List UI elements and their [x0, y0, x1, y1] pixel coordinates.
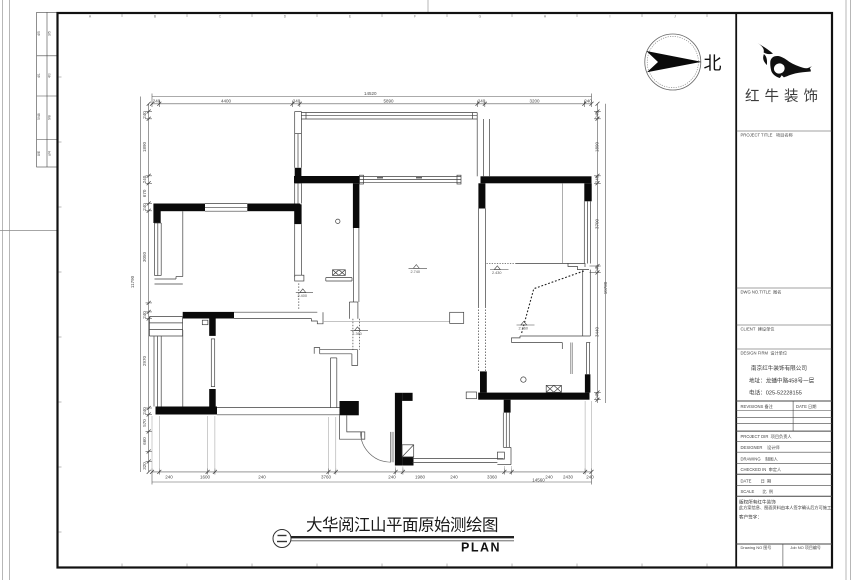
svg-text:570: 570 — [142, 419, 147, 427]
svg-text:PROJECT DIR 项目负责人: PROJECT DIR 项目负责人 — [741, 433, 793, 440]
svg-text:240: 240 — [586, 475, 594, 480]
svg-text:3440: 3440 — [595, 326, 600, 337]
svg-text:5890: 5890 — [383, 99, 394, 104]
svg-text:240: 240 — [584, 99, 592, 104]
svg-text:客户签字：: 客户签字： — [739, 514, 762, 521]
svg-text:4/5: 4/5 — [37, 31, 41, 36]
svg-text:CHECKED IN 审定人: CHECKED IN 审定人 — [741, 466, 783, 473]
svg-text:240: 240 — [142, 311, 147, 319]
svg-text:地址：龙蟠中路458号一层: 地址：龙蟠中路458号一层 — [749, 376, 815, 384]
svg-text:240: 240 — [142, 175, 147, 183]
svg-text:240: 240 — [595, 175, 600, 183]
svg-text:2.360: 2.360 — [352, 332, 362, 336]
svg-text:1980: 1980 — [415, 475, 426, 480]
svg-text:4/0: 4/0 — [48, 73, 52, 78]
svg-text:DRAWING 制图人: DRAWING 制图人 — [741, 455, 779, 462]
svg-text:I: I — [610, 15, 611, 19]
svg-text:240: 240 — [545, 475, 553, 480]
svg-text:2970: 2970 — [142, 355, 147, 366]
svg-text:Drawing NO 图号: Drawing NO 图号 — [741, 544, 772, 550]
svg-text:240: 240 — [595, 265, 600, 273]
svg-text:9/8: 9/8 — [48, 115, 52, 120]
svg-text:14560: 14560 — [532, 478, 545, 483]
svg-text:REVISIONS 备注: REVISIONS 备注 — [741, 403, 774, 410]
svg-text:240: 240 — [293, 99, 301, 104]
svg-text:240: 240 — [595, 111, 600, 119]
svg-text:4400: 4400 — [221, 99, 232, 104]
svg-text:1890: 1890 — [595, 141, 600, 152]
svg-text:240: 240 — [153, 99, 161, 104]
svg-text:大华阅江山平面原始测绘图: 大华阅江山平面原始测绘图 — [306, 516, 498, 535]
svg-text:3760: 3760 — [321, 475, 332, 480]
svg-text:660: 660 — [142, 437, 147, 445]
svg-text:10780: 10780 — [603, 281, 608, 294]
svg-text:PROJECT TITLE 项目名称: PROJECT TITLE 项目名称 — [741, 132, 793, 139]
svg-text:Job NO 项目编号: Job NO 项目编号 — [790, 544, 821, 550]
svg-text:320: 320 — [142, 462, 147, 470]
svg-text:11790: 11790 — [130, 275, 135, 288]
svg-text:2.430: 2.430 — [492, 271, 502, 275]
svg-text:a/4: a/4 — [48, 151, 52, 156]
svg-text:240: 240 — [258, 475, 266, 480]
svg-text:3700: 3700 — [595, 218, 600, 229]
svg-text:5/48: 5/48 — [37, 113, 41, 120]
svg-text:DWG NO.TITLE 图名: DWG NO.TITLE 图名 — [741, 289, 782, 296]
svg-text:670: 670 — [142, 189, 147, 197]
svg-text:PLAN: PLAN — [461, 541, 501, 555]
svg-text:G: G — [479, 15, 482, 19]
svg-text:DESIGN FIRM 设计单位: DESIGN FIRM 设计单位 — [741, 350, 788, 357]
svg-text:南京红牛装饰有限公司: 南京红牛装饰有限公司 — [751, 364, 807, 372]
svg-text:电话：025-52228155: 电话：025-52228155 — [749, 388, 802, 396]
svg-text:240: 240 — [388, 475, 396, 480]
svg-text:CLIENT 建设单位: CLIENT 建设单位 — [741, 325, 775, 332]
svg-text:2430: 2430 — [563, 475, 574, 480]
svg-text:3050: 3050 — [142, 251, 147, 262]
svg-text:3200: 3200 — [529, 99, 540, 104]
svg-text:J: J — [674, 15, 676, 19]
svg-text:240: 240 — [142, 111, 147, 119]
svg-text:240: 240 — [142, 203, 147, 211]
svg-text:240: 240 — [478, 99, 486, 104]
svg-text:此方案信息、图面资料由本人签字确认后方可施工。: 此方案信息、图面资料由本人签字确认后方可施工。 — [739, 504, 835, 511]
svg-text:3/5: 3/5 — [48, 31, 52, 36]
svg-text:14520: 14520 — [364, 91, 377, 96]
svg-text:4/1: 4/1 — [37, 73, 41, 78]
svg-text:2.740: 2.740 — [411, 270, 421, 274]
svg-text:北: 北 — [704, 54, 722, 74]
svg-text:DESIGNER 设计师: DESIGNER 设计师 — [741, 444, 780, 451]
svg-text:SCALE 比 例: SCALE 比 例 — [741, 488, 774, 495]
svg-text:2.360: 2.360 — [519, 327, 529, 331]
svg-text:240: 240 — [450, 475, 458, 480]
svg-text:240: 240 — [595, 392, 600, 400]
svg-text:1600: 1600 — [200, 475, 211, 480]
svg-text:2.400: 2.400 — [298, 294, 308, 298]
svg-text:1890: 1890 — [142, 141, 147, 152]
svg-text:240: 240 — [165, 475, 173, 480]
svg-text:红牛装饰: 红牛装饰 — [745, 88, 823, 105]
svg-text:F: F — [414, 15, 416, 19]
svg-text:8/E: 8/E — [37, 150, 41, 156]
svg-text:240: 240 — [142, 407, 147, 415]
svg-text:3360: 3360 — [487, 475, 498, 480]
